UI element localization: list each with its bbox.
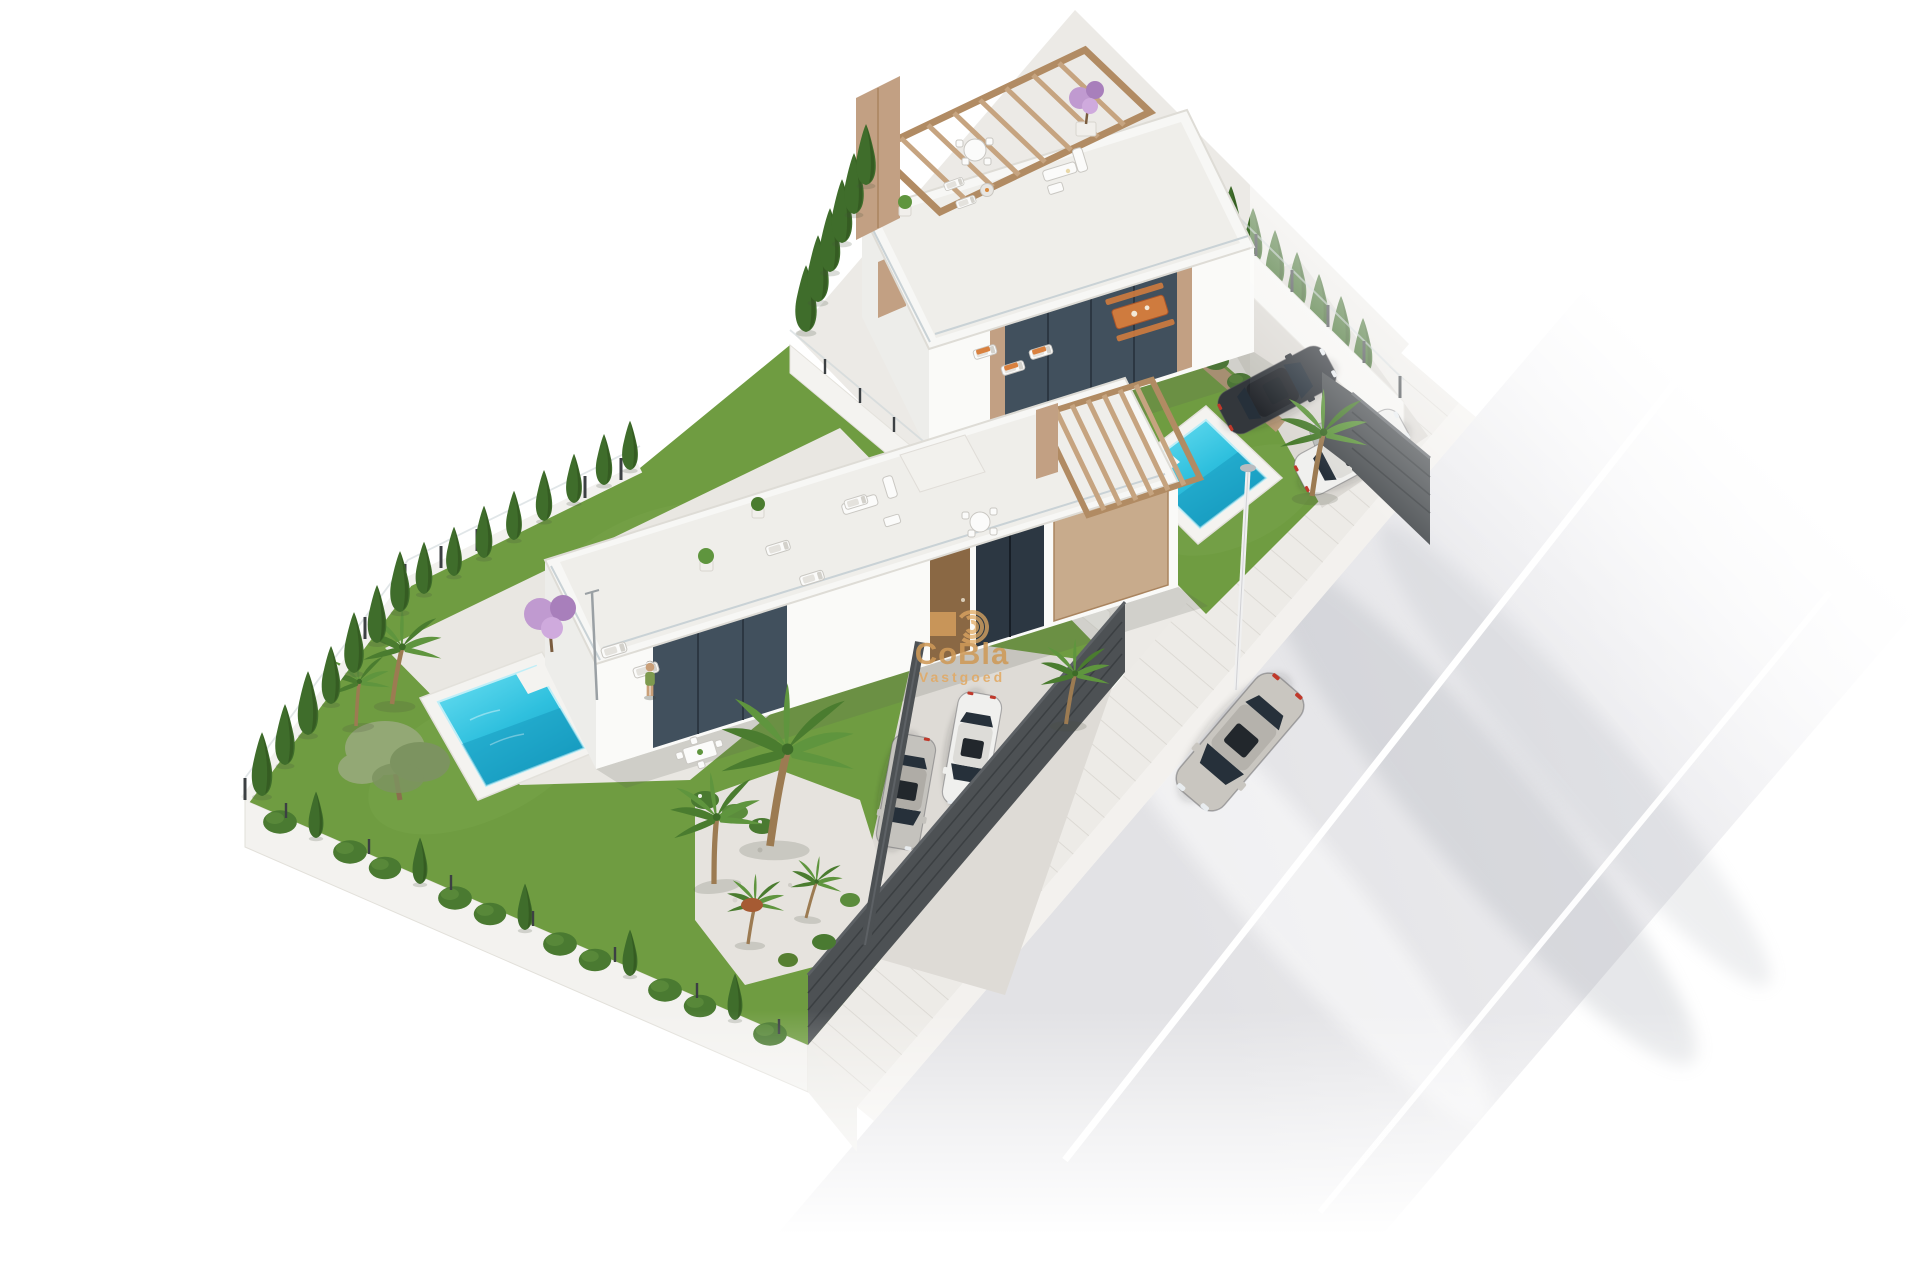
fence-post (584, 476, 587, 498)
door-handle (961, 598, 965, 602)
fence-post (824, 359, 826, 374)
fence-post (440, 546, 443, 568)
shrub (812, 934, 836, 950)
fence-post (620, 458, 623, 480)
fence-post (450, 875, 452, 890)
watermark-title: CoBla (915, 636, 1010, 671)
hedge-bush (263, 810, 297, 833)
render-canvas: CoBla Vastgoed (0, 0, 1920, 1280)
fence-post (893, 417, 895, 432)
watermark-logo-tile (930, 612, 956, 636)
white-fade-top-right (1250, 60, 1920, 860)
shrub (840, 893, 860, 907)
cypress-tree (506, 491, 522, 544)
cypress-tree (252, 732, 272, 800)
cushion (1066, 169, 1070, 173)
cypress-tree (298, 671, 318, 739)
hedge-bush (648, 978, 682, 1001)
door-frame-wood (990, 325, 1005, 431)
red-shrub (741, 898, 763, 912)
hedge-bush (369, 857, 402, 880)
pebble (733, 898, 738, 903)
door-frame-wood (1177, 266, 1192, 372)
white-fade-bottom (0, 1000, 1920, 1280)
cypress-tree (596, 434, 612, 489)
pergola-wood-wall (1036, 403, 1058, 479)
hedge-bush (333, 840, 367, 863)
cypress-tree (566, 454, 582, 507)
cypress-tree (536, 470, 552, 525)
fence-post (285, 803, 287, 818)
hedge-bush (579, 949, 612, 972)
cypress-tree (476, 506, 493, 562)
cypress-tree (368, 585, 387, 647)
roof-dining-set (0, 0, 993, 165)
roof-potted-plant (898, 195, 912, 216)
shrub (778, 953, 798, 967)
fence-post (368, 839, 370, 854)
fence-post (859, 388, 861, 403)
fence-post (244, 778, 247, 800)
fence-post (696, 983, 698, 998)
fence-post (532, 911, 534, 926)
fence-post (364, 617, 367, 639)
watermark-tagline: Vastgoed (919, 669, 1005, 685)
cypress-tree (622, 421, 638, 474)
hedge-bush (543, 932, 577, 955)
architectural-render: CoBla Vastgoed (0, 0, 1920, 1280)
hedge-bush (438, 886, 472, 909)
fence-post (614, 947, 616, 962)
hedge-bush (474, 903, 507, 926)
pebble (788, 883, 792, 887)
